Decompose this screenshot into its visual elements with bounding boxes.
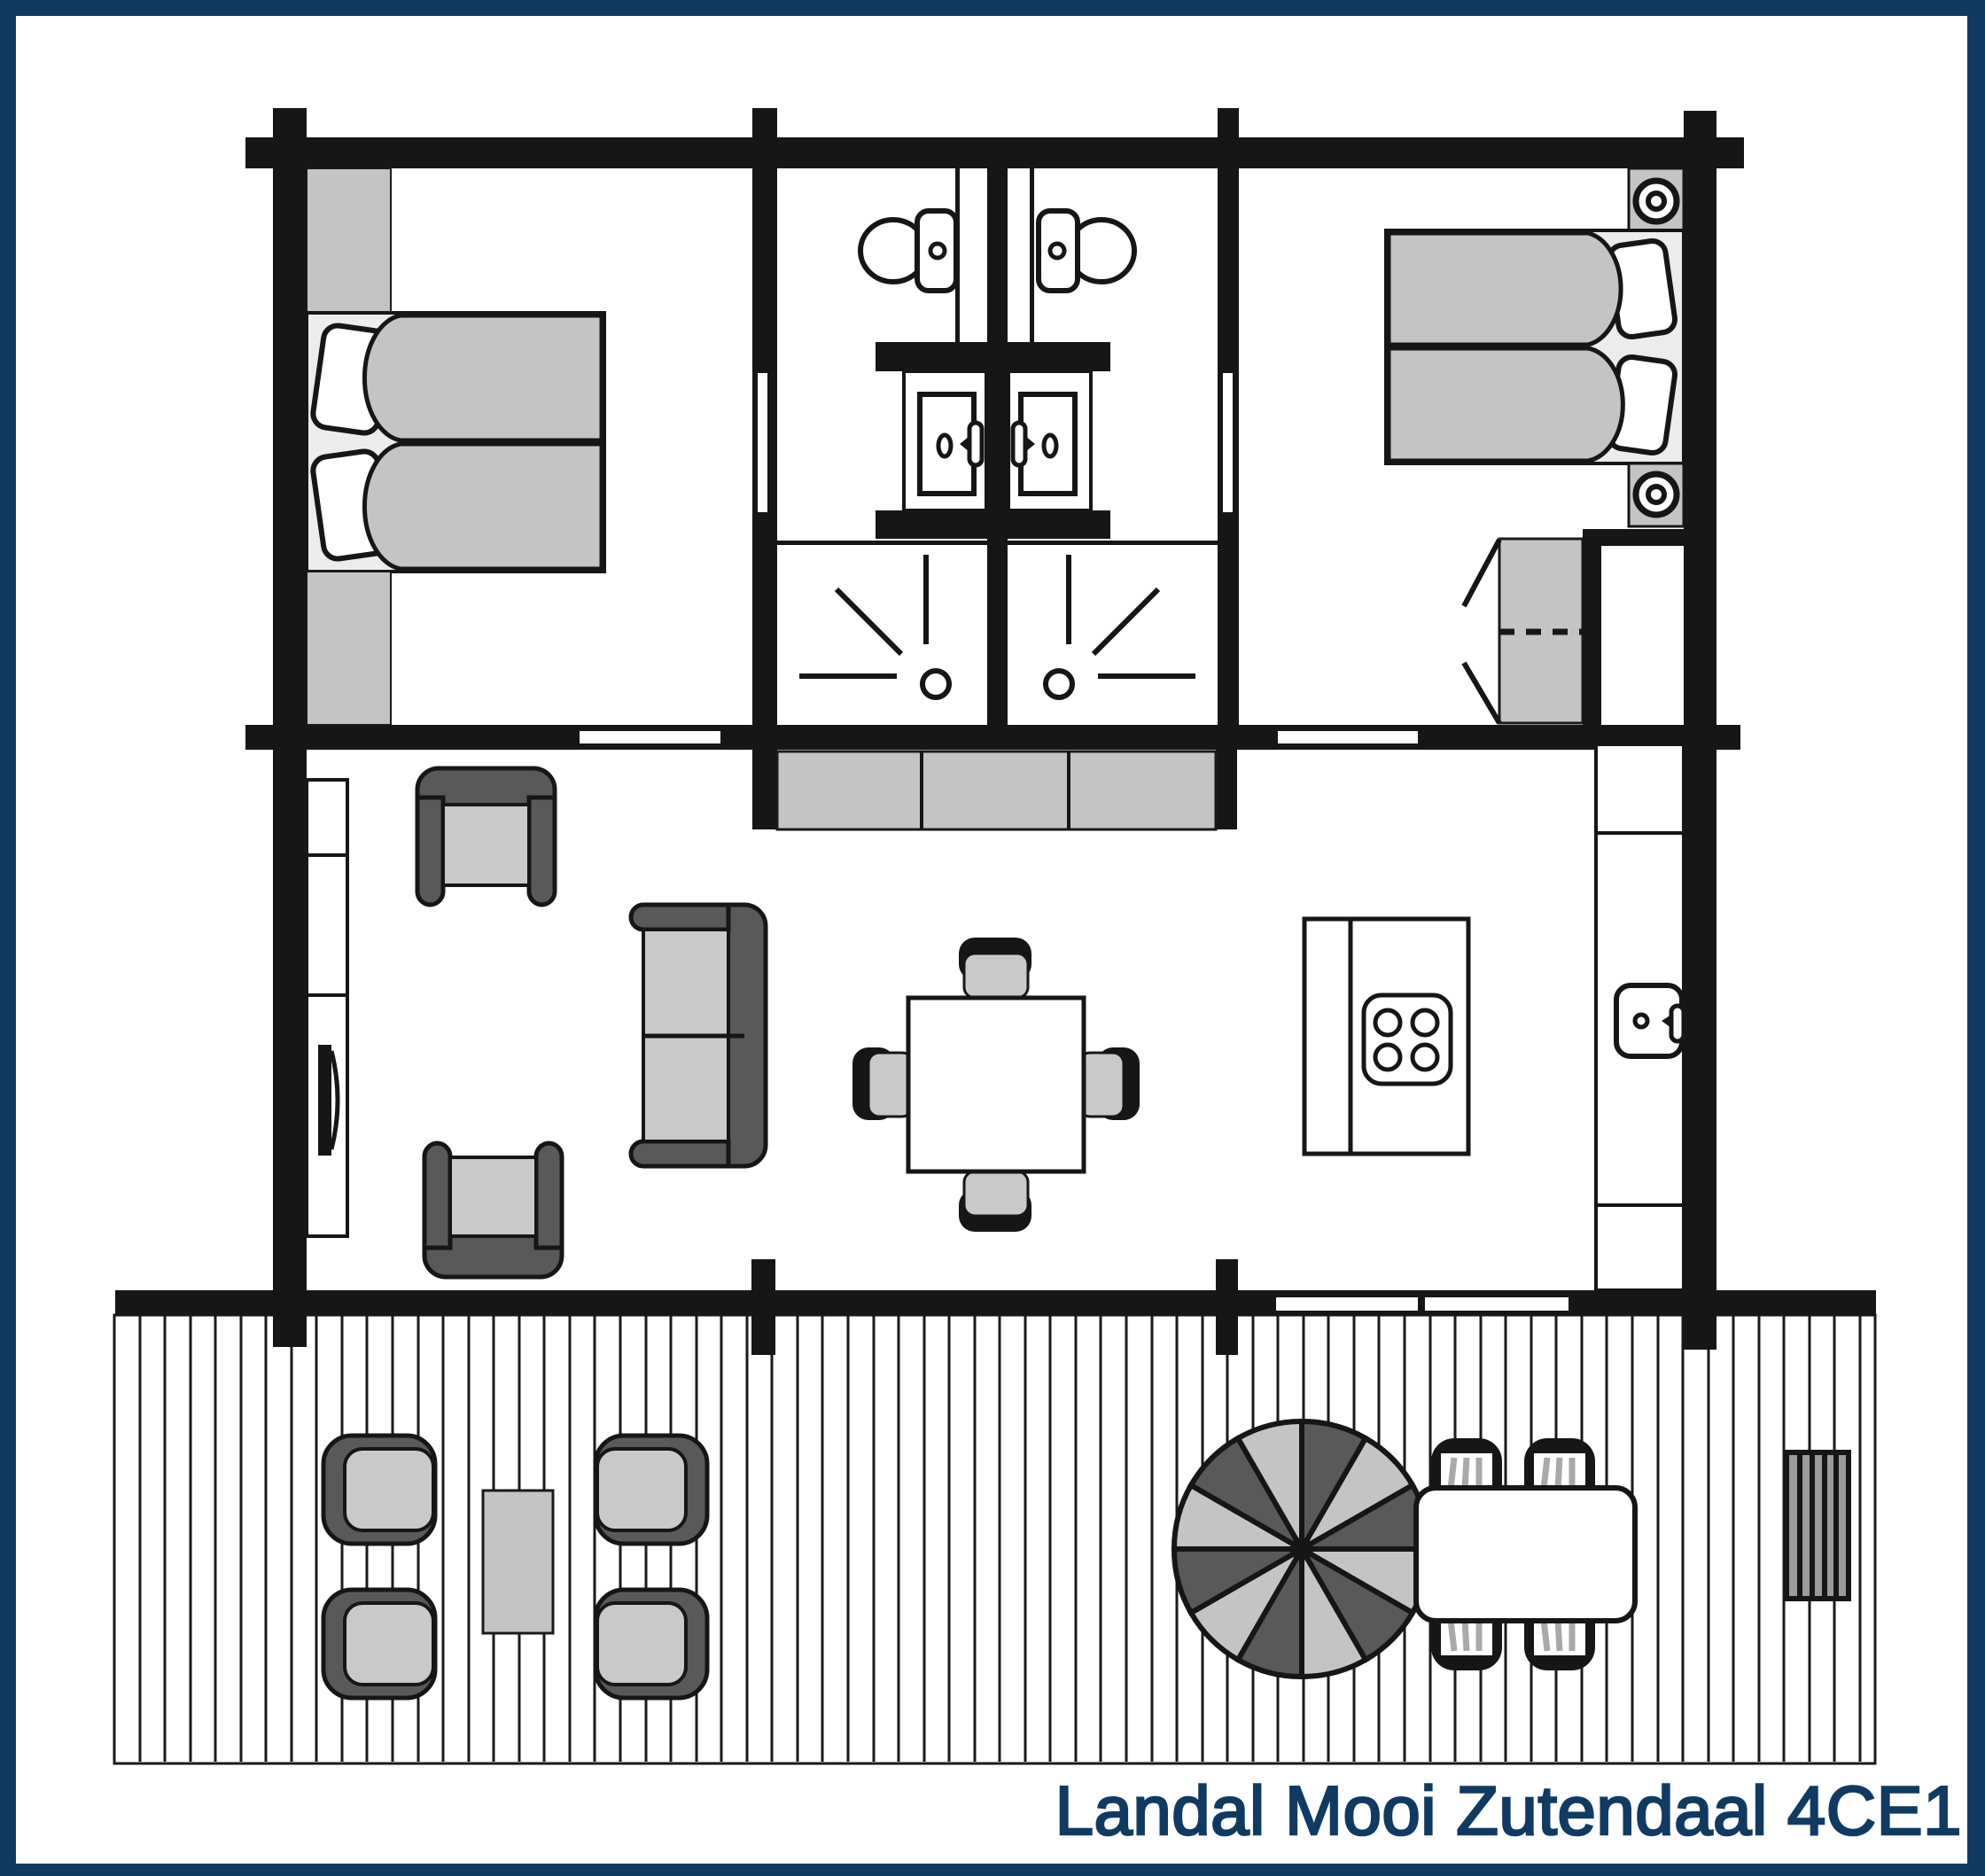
svg-text:Landal Mooi Zutendaal 4CE1: Landal Mooi Zutendaal 4CE1 [1055, 1771, 1962, 1849]
